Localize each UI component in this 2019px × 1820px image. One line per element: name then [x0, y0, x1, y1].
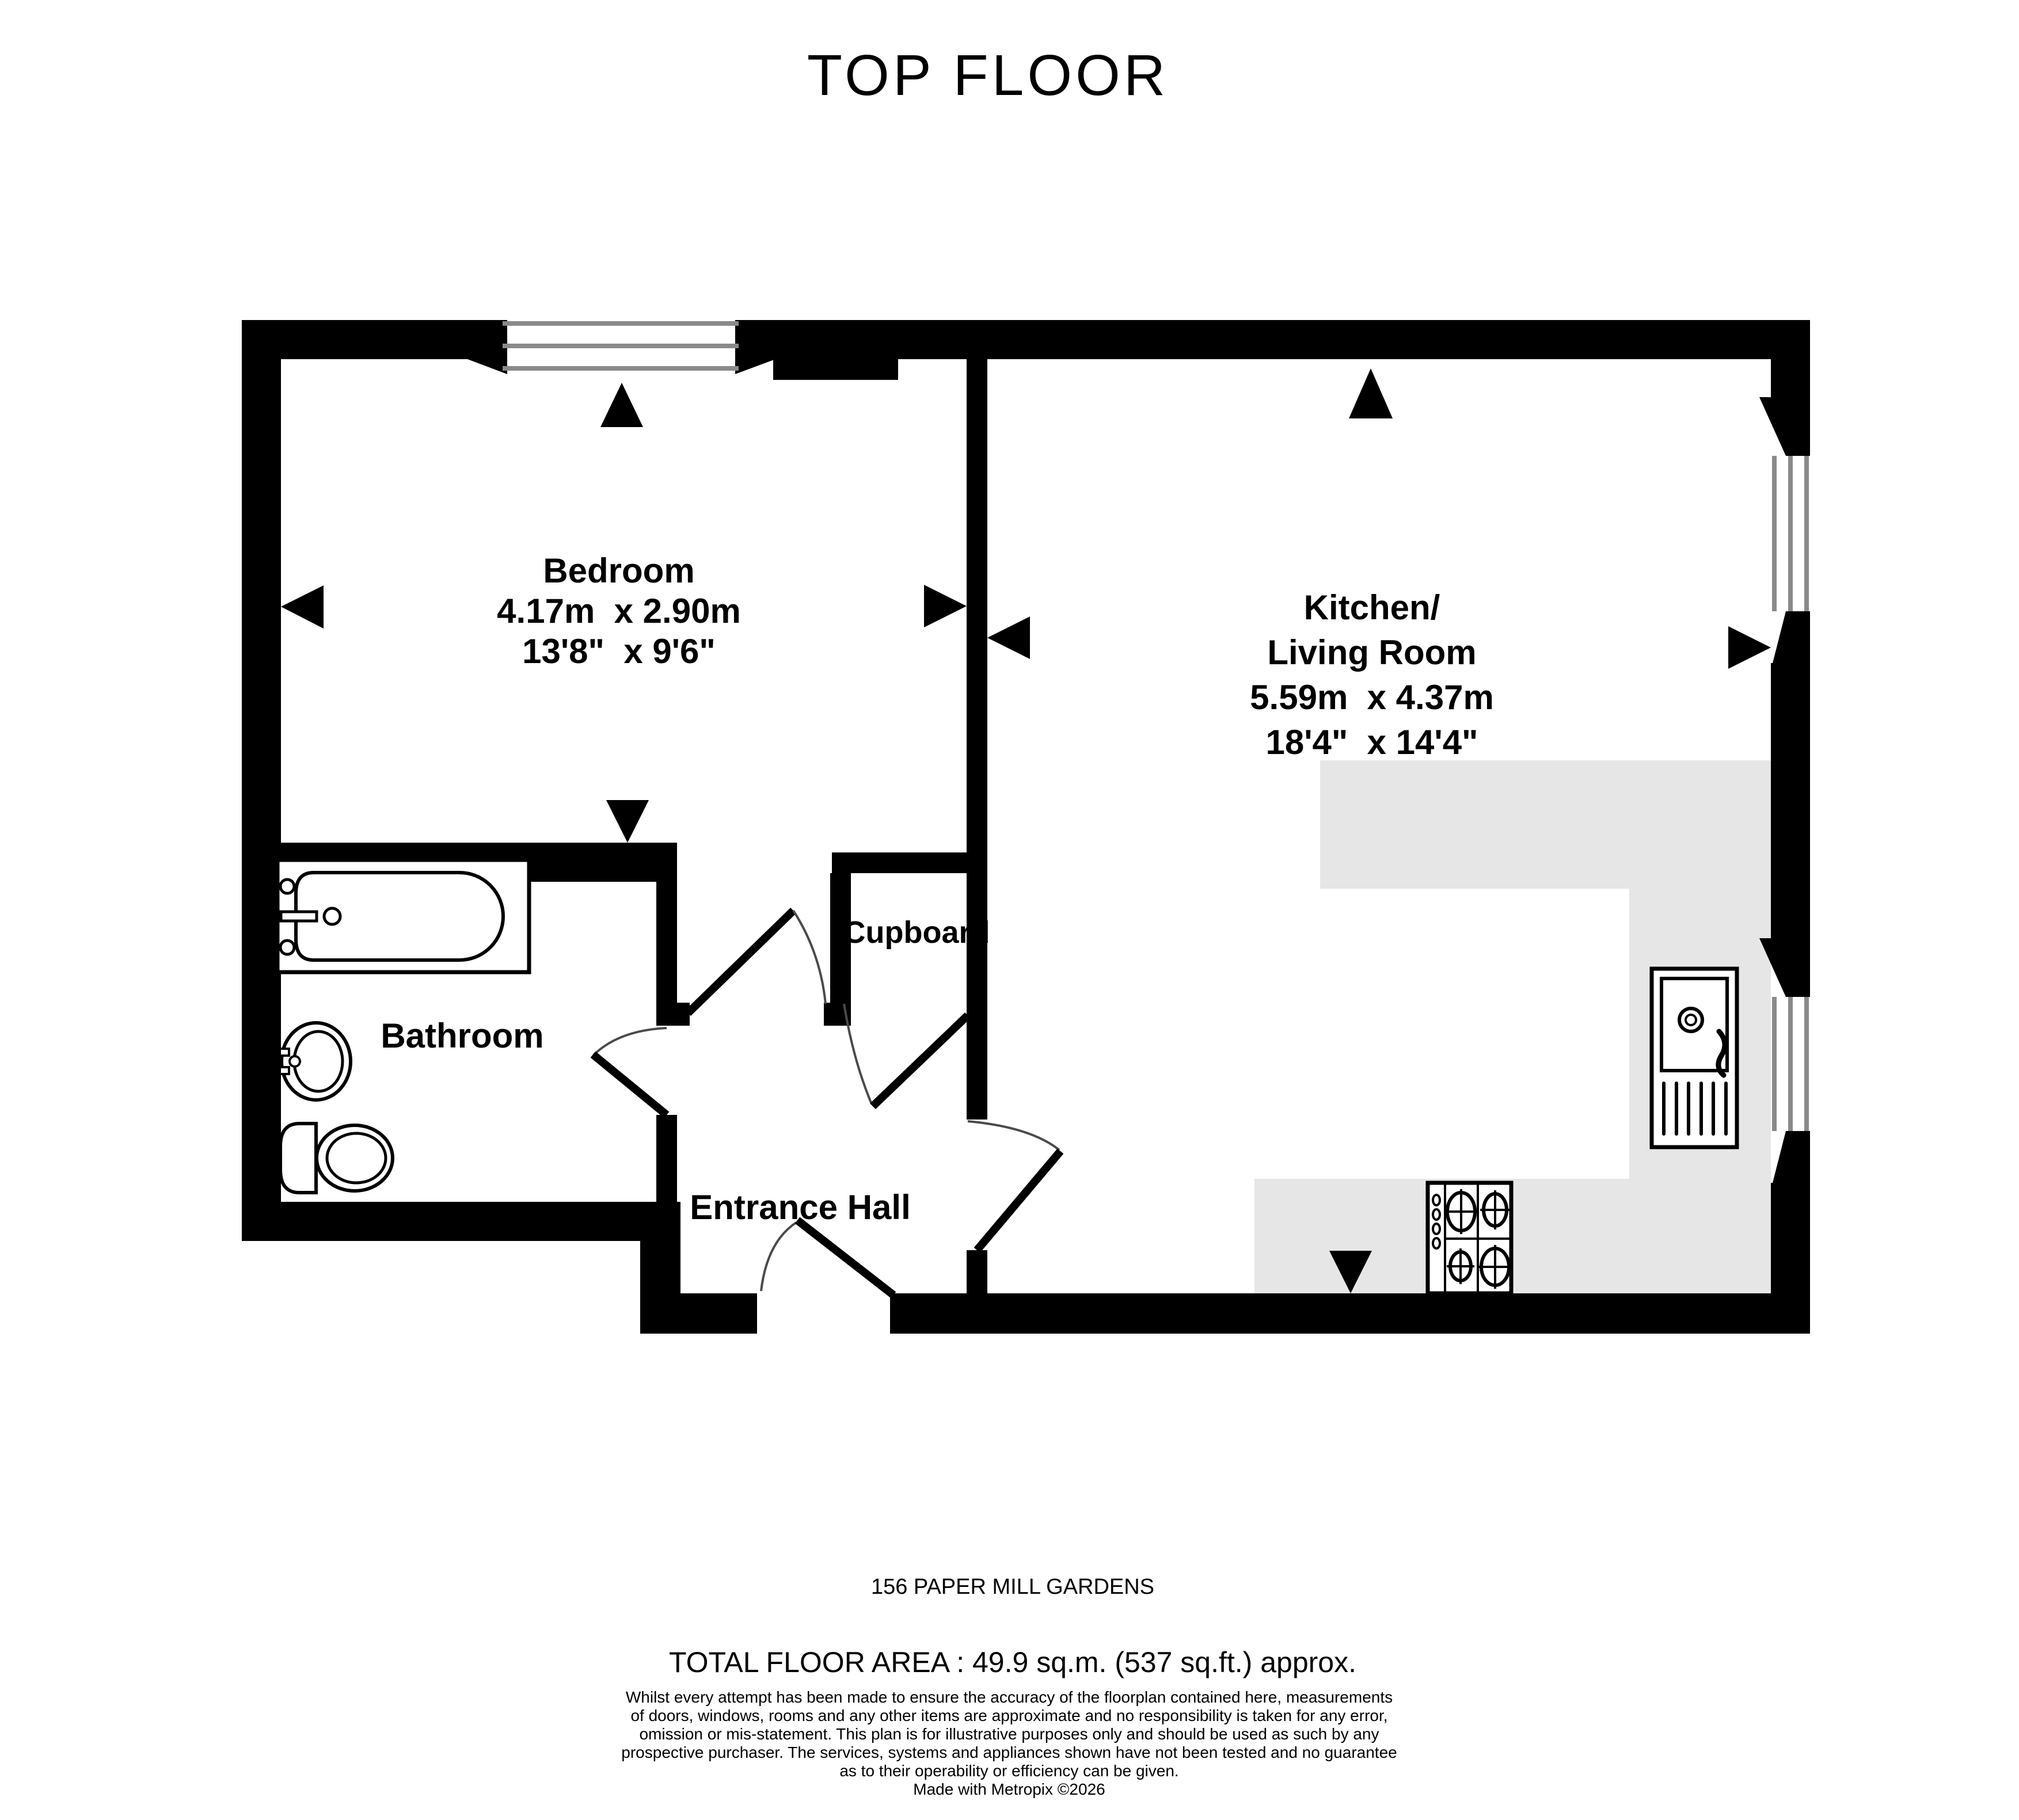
address-text: 156 PAPER MILL GARDENS — [871, 1575, 1154, 1599]
wall-left — [242, 320, 281, 1241]
wall-kitchen-bottom — [890, 1293, 1810, 1334]
kitchen-window-lower-icon — [1774, 997, 1807, 1131]
wall-divider-bedroom-kitchen — [967, 320, 987, 1120]
toilet-icon — [280, 1124, 393, 1193]
wall-right-window1-jamb-bottom — [1771, 611, 1810, 670]
bedroom-label: Bedroom — [543, 551, 694, 590]
wall-bedroom-window-jamb-left — [467, 320, 507, 374]
kitchen-dim-imperial: 18'4" x 14'4" — [1265, 723, 1478, 761]
wall-cupboard-top — [832, 852, 967, 873]
bathroom-door-icon — [593, 1028, 667, 1115]
bedroom-window-icon — [503, 323, 739, 368]
bathtub-icon — [277, 860, 529, 972]
total-floor-area-text: TOTAL FLOOR AREA : 49.9 sq.m. (537 sq.ft… — [669, 1646, 1356, 1678]
kitchen-window-upper-icon — [1774, 456, 1807, 611]
bedroom-dim-metric: 4.17m x 2.90m — [497, 592, 741, 630]
disclaimer-line: of doors, windows, rooms and any other i… — [630, 1707, 1387, 1724]
arrow-up-kitchen-icon — [1349, 368, 1393, 418]
stove-hob-icon — [1428, 1183, 1512, 1293]
wall-top-mid — [773, 320, 898, 380]
arrow-up-bedroom-icon — [600, 383, 643, 427]
wall-hall-bottom — [640, 1293, 757, 1334]
cupboard-label: Cupboard — [843, 915, 990, 950]
wall-bathroom-bottom — [242, 1202, 680, 1241]
room-labels: Bedroom 4.17m x 2.90m 13'8" x 9'6" Kitch… — [381, 551, 1493, 1227]
page-title: TOP FLOOR — [807, 43, 1169, 108]
kitchen-label-line1: Kitchen/ — [1304, 588, 1440, 627]
bathroom-label: Bathroom — [381, 1016, 543, 1055]
entrance-hall-label: Entrance Hall — [690, 1188, 910, 1227]
floorplan-page: { "title": "TOP FLOOR", "colors": { "wal… — [0, 0, 2019, 1820]
disclaimer-line: Whilst every attempt has been made to en… — [626, 1688, 1393, 1706]
floorplan-canvas: TOP FLOOR Bedroom 4.17m x 2.90m 13'8" x … — [0, 0, 2019, 1820]
wall-divider-stub — [967, 1250, 987, 1294]
arrow-down-bedroom-icon — [606, 800, 649, 843]
wall-bathroom-right-upper — [656, 882, 677, 1003]
arrow-left-bedroom-icon — [281, 585, 324, 629]
entrance-door-icon — [761, 1220, 893, 1295]
footer: 156 PAPER MILL GARDENS TOTAL FLOOR AREA … — [621, 1575, 1397, 1798]
bedroom-dim-imperial: 13'8" x 9'6" — [522, 632, 716, 671]
kitchen-dim-metric: 5.59m x 4.37m — [1250, 678, 1494, 717]
wall-right-middle — [1771, 663, 1810, 938]
disclaimer-line: as to their operability or efficiency ca… — [839, 1762, 1178, 1780]
wall-bedroom-window-jamb-right — [735, 320, 775, 374]
kitchen-door-icon — [968, 1121, 1060, 1250]
arrow-right-kitchen-icon — [1728, 626, 1771, 669]
wall-top-right — [895, 320, 1810, 359]
wall-right-window1-jamb-top — [1759, 397, 1810, 456]
arrow-right-bedroom-icon — [924, 585, 967, 627]
kitchen-label-line2: Living Room — [1267, 633, 1476, 672]
arrow-left-kitchen-icon — [987, 616, 1030, 659]
disclaimer-line: prospective purchaser. The services, sys… — [621, 1743, 1397, 1761]
windows — [503, 323, 1807, 1131]
kitchen-sink-icon — [1652, 969, 1737, 1147]
bedroom-door-icon — [688, 911, 826, 1013]
wall-right-upper — [1771, 320, 1810, 403]
wall-right-window2-jamb-bottom — [1771, 1131, 1810, 1190]
disclaimer-line: omission or mis-statement. This plan is … — [639, 1725, 1379, 1743]
cupboard-door-icon — [844, 1004, 968, 1106]
credit-text: Made with Metropix ©2026 — [913, 1780, 1105, 1798]
wash-basin-icon — [280, 1023, 351, 1100]
wall-bathroom-right-foot — [656, 1003, 690, 1026]
